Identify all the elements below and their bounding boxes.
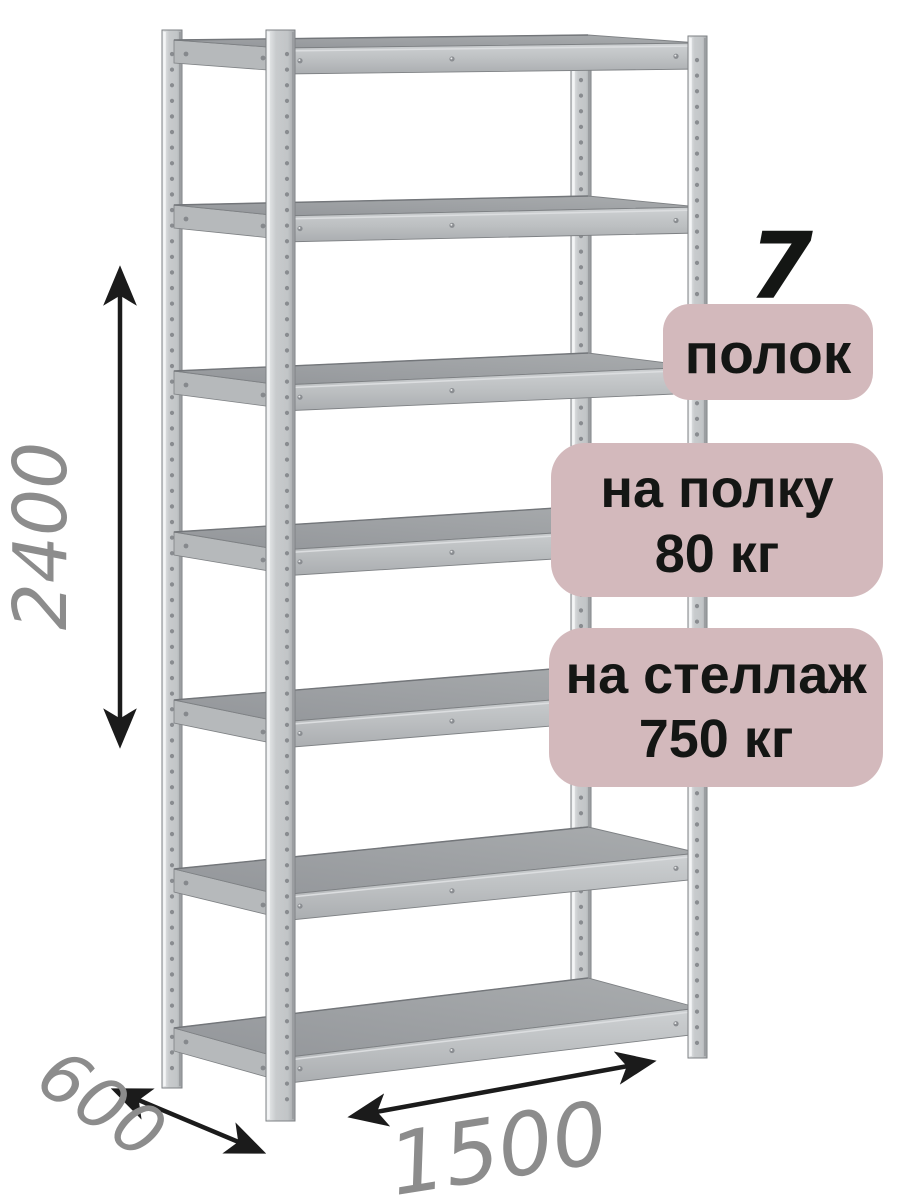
rack-post (266, 30, 295, 1121)
shelving-rack-illustration: 2400 600 1500 7 полок на полку 80 кг на … (0, 0, 900, 1200)
width-dimension-label: 1500 (383, 1083, 615, 1200)
shelf (174, 35, 699, 74)
depth-dimension-label: 600 (23, 1033, 180, 1176)
shelf-load-line2: 80 кг (655, 524, 780, 584)
rack-load-line1: на стеллаж (565, 645, 867, 705)
rack-post (162, 30, 182, 1088)
shelf (174, 827, 699, 921)
shelf-load-line1: на полку (600, 459, 833, 519)
shelf-count-number: 7 (749, 213, 813, 320)
product-image: 2400 600 1500 7 полок на полку 80 кг на … (0, 0, 900, 1200)
rack-load-badge: на стеллаж 750 кг (549, 628, 883, 787)
shelf (174, 353, 699, 411)
shelf-count-badge-label: полок (685, 322, 852, 386)
shelf (174, 196, 699, 242)
rack-load-line2: 750 кг (639, 709, 794, 769)
shelf-load-badge: на полку 80 кг (551, 443, 883, 597)
shelf-count-badge: полок (663, 304, 873, 400)
height-dimension-label: 2400 (0, 442, 84, 630)
